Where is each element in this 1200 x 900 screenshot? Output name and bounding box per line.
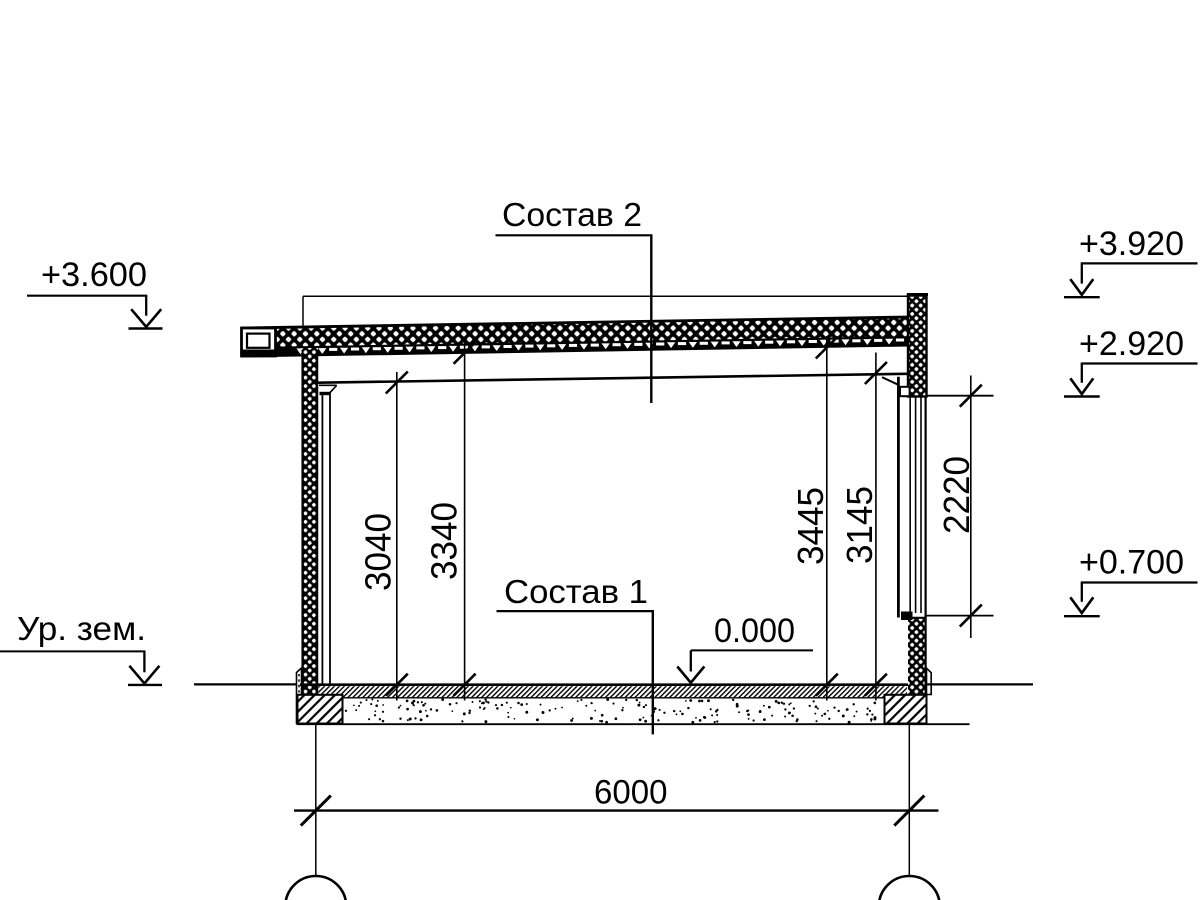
- svg-text:0.000: 0.000: [714, 612, 795, 650]
- svg-text:2220: 2220: [936, 456, 977, 534]
- svg-text:3340: 3340: [424, 502, 465, 580]
- svg-text:3040: 3040: [358, 513, 399, 591]
- svg-text:+3.920: +3.920: [1079, 225, 1184, 263]
- svg-text:3445: 3445: [790, 487, 831, 565]
- svg-text:Ур. зем.: Ур. зем.: [17, 611, 146, 648]
- svg-text:+0.700: +0.700: [1079, 544, 1184, 582]
- svg-text:6000: 6000: [594, 773, 668, 811]
- svg-text:+3.600: +3.600: [41, 256, 147, 294]
- svg-text:Состав 2: Состав 2: [502, 197, 642, 234]
- svg-text:3145: 3145: [839, 486, 880, 564]
- svg-text:Состав 1: Состав 1: [504, 574, 648, 611]
- svg-text:+2.920: +2.920: [1079, 325, 1184, 363]
